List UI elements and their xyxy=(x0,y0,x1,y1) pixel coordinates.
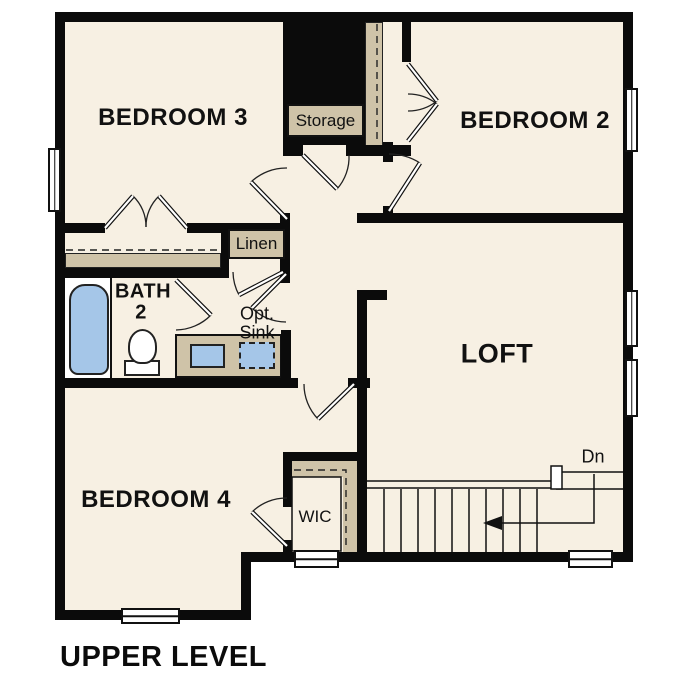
window-bedroom4-bottom xyxy=(121,608,180,624)
wall-outer-left xyxy=(55,12,65,620)
wall-closet2-stub xyxy=(402,22,411,62)
opt-sink-label-line1: Opt. xyxy=(240,304,274,325)
wall-bedroom3-bottom-a xyxy=(60,223,105,233)
wall-bath-top xyxy=(60,268,229,278)
wall-vanity-right xyxy=(281,330,291,378)
bath2-label-line1: BATH xyxy=(115,281,171,304)
optional-sink-dashed xyxy=(239,342,275,369)
window-stairs-bottom xyxy=(568,550,613,568)
wall-storage-bottom-left xyxy=(283,145,303,156)
floor-plan-upper-level: Storage Linen BEDROOM 3 BEDROOM 2 LOFT B… xyxy=(0,0,687,687)
window-loft-lower xyxy=(625,359,638,417)
storage-label: Storage xyxy=(296,111,356,131)
floor-bedroom4-bay xyxy=(60,557,246,615)
window-bedroom2-right xyxy=(625,88,638,152)
vanity-sink xyxy=(190,344,225,368)
wall-loft-stub xyxy=(367,290,387,300)
wall-loft-left xyxy=(357,290,367,552)
bedroom3-label: BEDROOM 3 xyxy=(98,104,248,132)
bedroom4-label: BEDROOM 4 xyxy=(81,486,231,514)
wall-bedroom2-bottom xyxy=(357,213,633,223)
wall-storage-bottom-right xyxy=(346,145,368,156)
bathtub xyxy=(69,284,109,375)
wall-wic-top xyxy=(283,452,367,461)
wic-label: WIC xyxy=(298,507,331,527)
bedroom3-closet-shelf xyxy=(65,253,221,268)
linen-label: Linen xyxy=(236,234,278,254)
page-title: UPPER LEVEL xyxy=(60,641,267,674)
wall-closet2-bottom xyxy=(365,145,411,156)
bedroom2-label: BEDROOM 2 xyxy=(460,107,610,135)
bath2-label-line2: 2 xyxy=(135,302,147,325)
opt-sink-label-line2: Sink xyxy=(239,323,274,344)
window-bedroom3-left xyxy=(48,148,61,212)
wall-outer-top xyxy=(55,12,633,22)
window-wic-bottom xyxy=(294,550,339,568)
toilet-bowl xyxy=(128,329,157,364)
wall-bath-bottom xyxy=(55,378,298,388)
wic-shelf-right xyxy=(343,461,357,552)
stairs-down-label: Dn xyxy=(581,447,604,468)
window-loft-upper xyxy=(625,290,638,347)
wall-wic-stub xyxy=(283,540,292,552)
storage-label-box: Storage xyxy=(287,104,364,137)
wall-bedroom2-door-bottom xyxy=(383,206,393,223)
loft-label: LOFT xyxy=(461,339,533,370)
linen-label-box: Linen xyxy=(228,229,285,259)
bedroom2-closet-shelf xyxy=(365,22,383,146)
wall-wic-left xyxy=(283,452,292,507)
